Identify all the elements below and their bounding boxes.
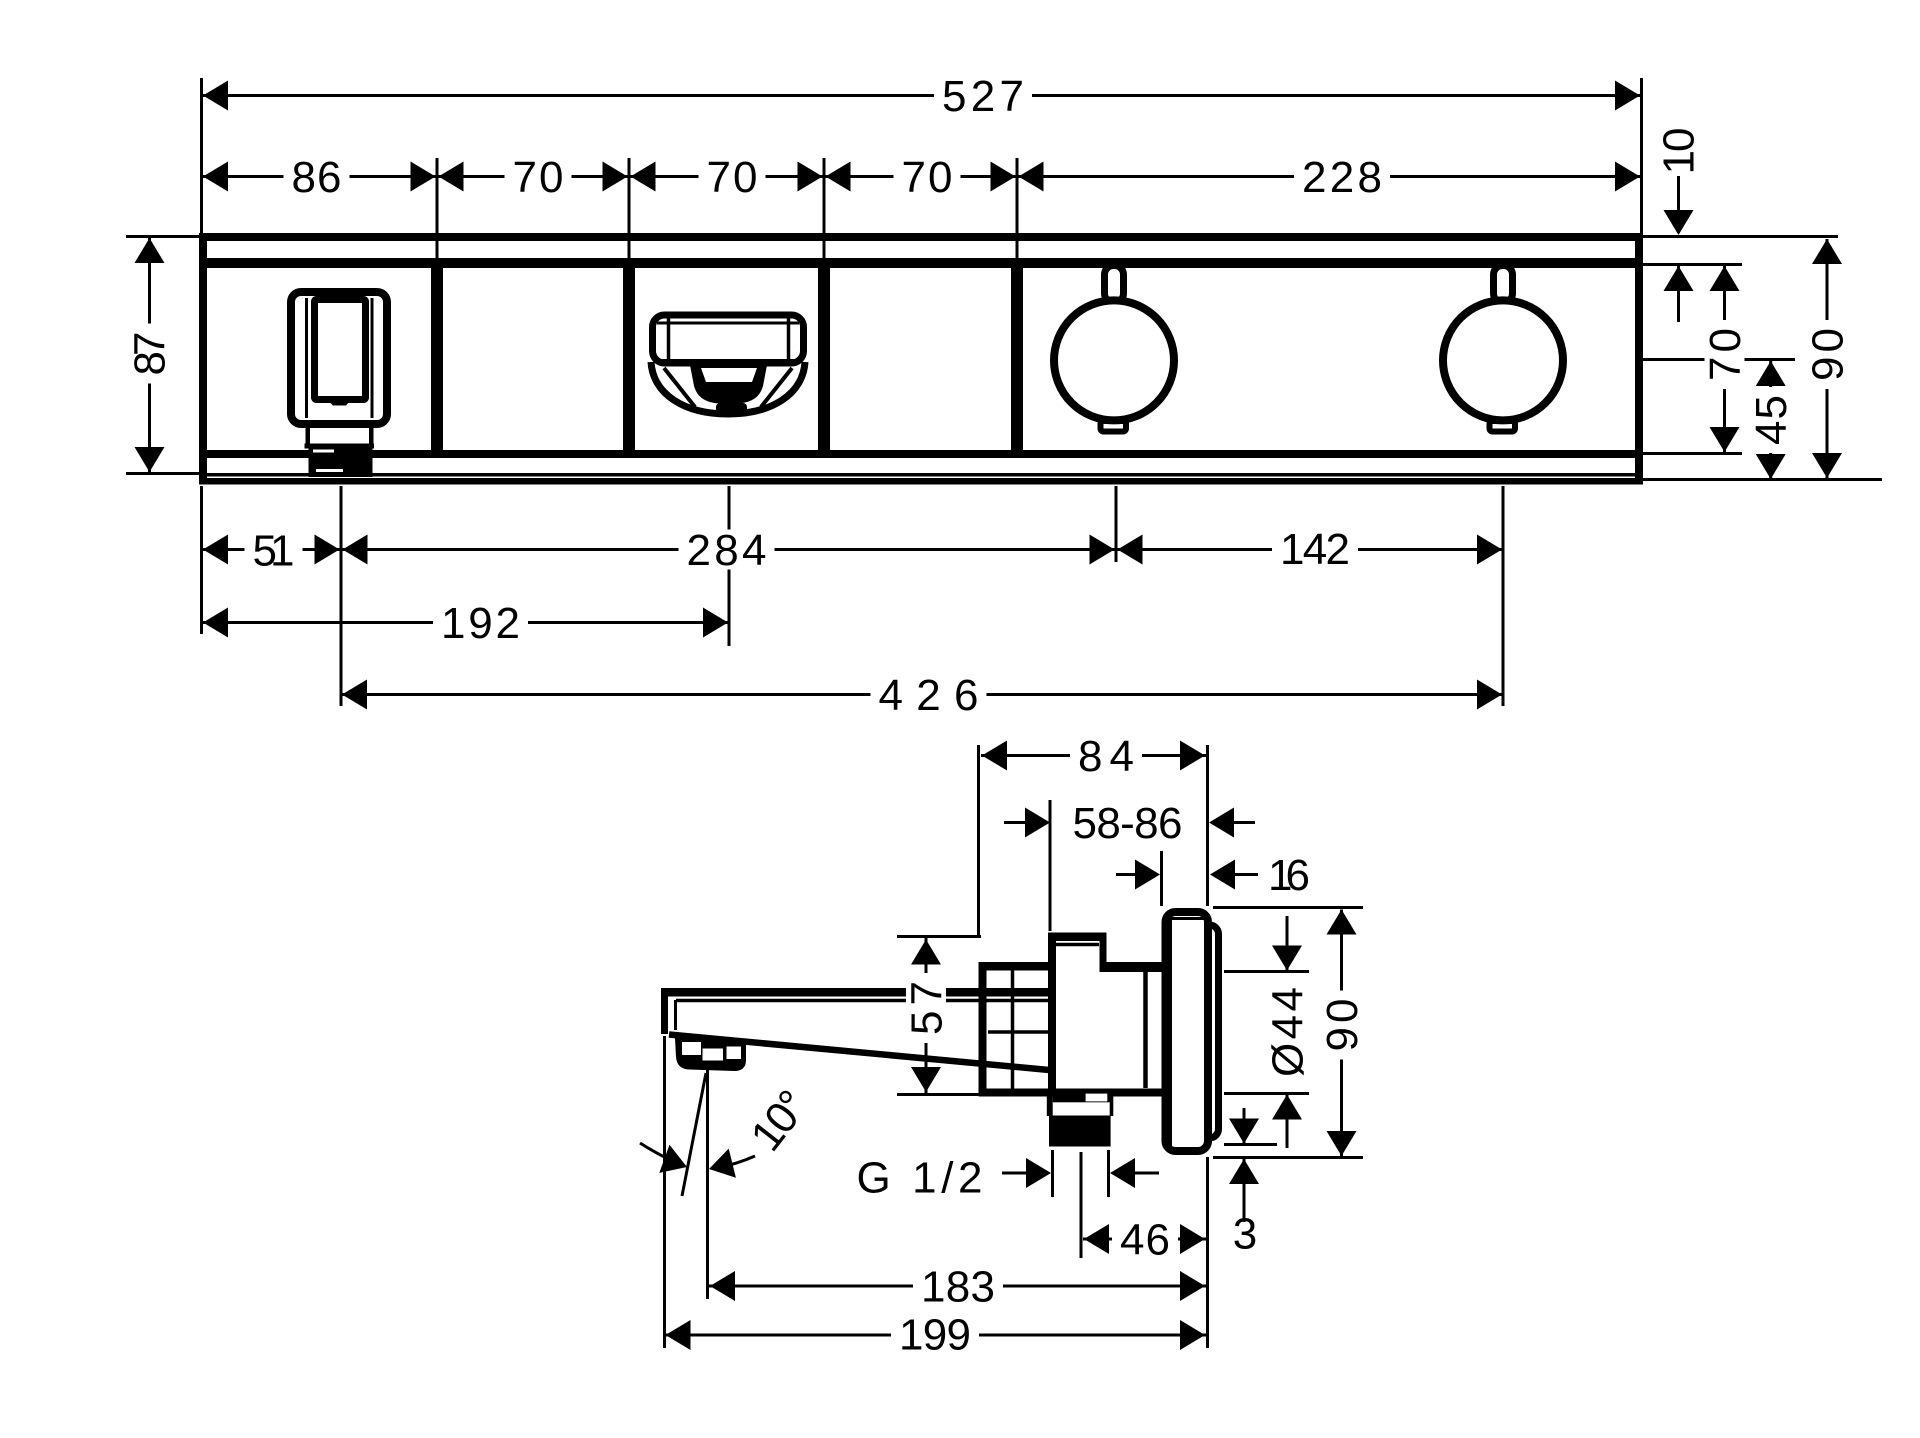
svg-text:10: 10 [1655,128,1704,175]
svg-text:86: 86 [292,153,342,202]
svg-text:192: 192 [441,599,520,648]
svg-text:199: 199 [899,1311,971,1360]
svg-text:183: 183 [921,1263,995,1312]
svg-text:527: 527 [942,72,1024,121]
svg-text:426: 426 [879,671,979,720]
svg-text:228: 228 [1302,153,1382,202]
svg-text:3: 3 [1233,1210,1257,1259]
svg-text:284: 284 [687,526,767,575]
svg-text:142: 142 [1280,525,1350,574]
svg-text:51: 51 [253,527,295,576]
svg-text:46: 46 [1120,1216,1170,1265]
svg-text:16: 16 [1268,851,1310,900]
svg-text:10°: 10° [741,1081,818,1160]
svg-text:45: 45 [1747,395,1796,445]
svg-text:G 1/2: G 1/2 [857,1154,983,1203]
svg-text:87: 87 [126,332,175,376]
svg-text:58-86: 58-86 [1073,799,1183,848]
svg-text:Ø44: Ø44 [1264,987,1313,1077]
